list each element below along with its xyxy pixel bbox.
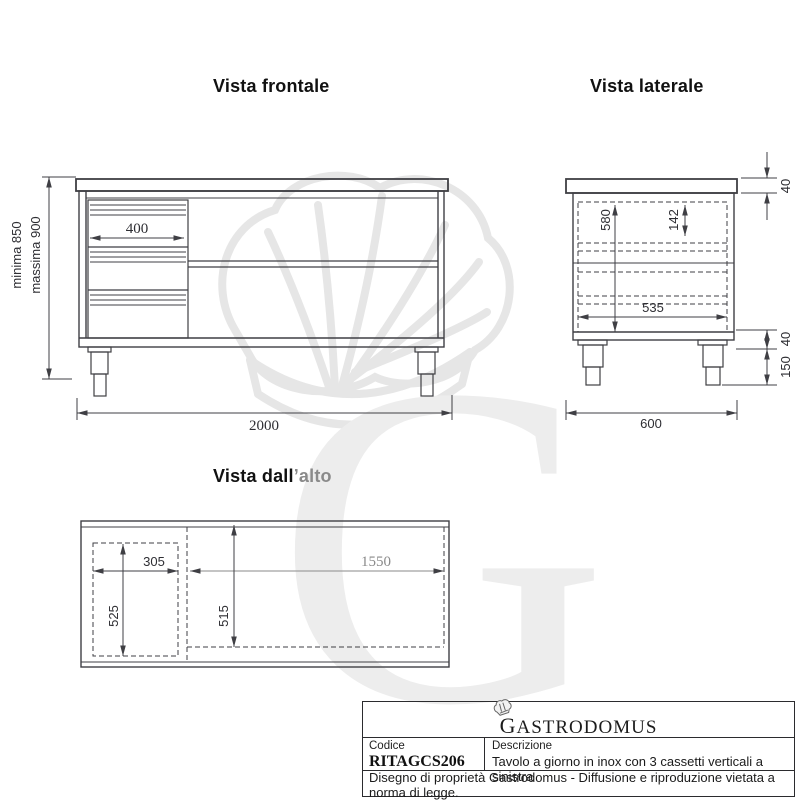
front-view: [76, 179, 448, 396]
side-body: [573, 193, 734, 340]
dim-leg-height: 150: [778, 356, 793, 378]
front-body: [79, 191, 444, 347]
dim-drawer-width: 400: [126, 221, 149, 237]
technical-drawing-page: { "views": { "frontal": { "title": "Vist…: [0, 0, 800, 800]
front-legs: [88, 347, 438, 396]
front-dimensions: [42, 177, 452, 420]
dim-top-thickness: 40: [778, 179, 793, 193]
front-tabletop: [76, 179, 448, 191]
code-label: Codice: [369, 740, 484, 752]
dim-height-min: minima 850: [9, 221, 24, 288]
dim-total-width: 2000: [249, 418, 279, 434]
code-cell: Codice RITAGCS206: [363, 738, 485, 770]
dim-inner-depth: 535: [642, 300, 664, 315]
side-tabletop: [566, 179, 737, 193]
dim-top-inner-depth: 515: [216, 605, 231, 627]
description-cell: Descrizione Tavolo a giorno in inox con …: [485, 738, 794, 770]
top-view-title-black: Vista dall: [213, 466, 294, 486]
front-view-title: Vista frontale: [213, 76, 330, 97]
side-view: [566, 179, 737, 385]
brand-logo: Gastrodomus: [500, 710, 658, 737]
dim-total-depth: 600: [640, 416, 662, 431]
dim-open-width: 1550: [361, 554, 391, 570]
dim-drawer-block-width: 305: [143, 554, 165, 569]
code-value: RITAGCS206: [369, 753, 484, 771]
title-block-fields-row: Codice RITAGCS206 Descrizione Tavolo a g…: [363, 738, 794, 771]
copyright-row: Disegno di proprietà Gastrodomus - Diffu…: [363, 771, 794, 798]
side-view-title: Vista laterale: [590, 76, 704, 97]
top-dashed: [93, 527, 444, 662]
copyright-text: Disegno di proprietà Gastrodomus - Diffu…: [369, 770, 794, 800]
dim-drawer-block-depth: 525: [106, 605, 121, 627]
title-block: Gastrodomus Codice RITAGCS206 Descrizion…: [362, 701, 795, 797]
dim-drawer-inner-height: 142: [666, 209, 681, 231]
top-view-title: Vista dall’alto: [213, 466, 332, 487]
top-view-title-gray: ’alto: [294, 466, 332, 486]
dim-inner-height: 580: [598, 209, 613, 231]
chef-hat-icon: [492, 698, 514, 718]
drawing-layer: 400 2000 minima 850 massima 900: [0, 0, 800, 800]
title-block-logo-row: Gastrodomus: [363, 702, 794, 738]
dim-height-max: massima 900: [28, 216, 43, 293]
brand-name: Gastrodomus: [500, 710, 658, 737]
top-view: [81, 521, 449, 667]
description-label: Descrizione: [492, 740, 794, 752]
top-dimensions: [93, 525, 444, 656]
dim-base-band: 40: [778, 332, 793, 346]
side-legs: [578, 340, 727, 385]
